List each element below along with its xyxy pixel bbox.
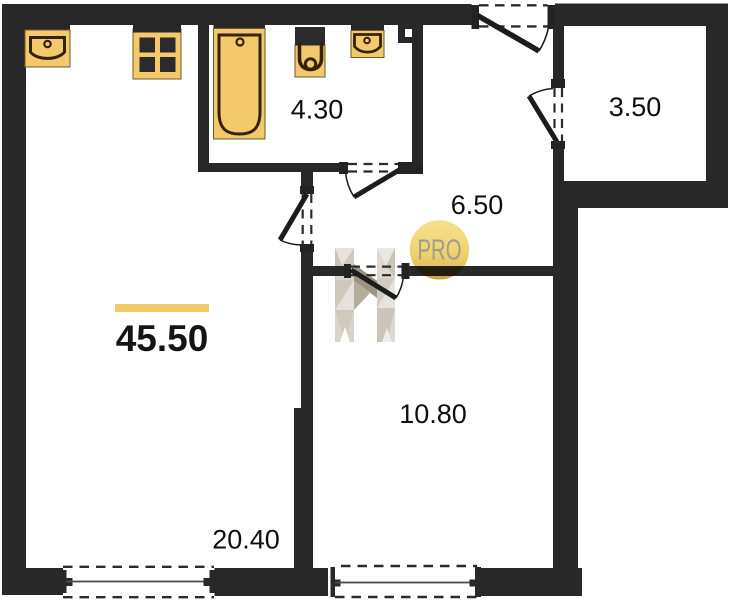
svg-text:10.80: 10.80: [399, 399, 467, 429]
svg-text:3.50: 3.50: [609, 92, 662, 122]
svg-text:PRO: PRO: [418, 235, 462, 267]
svg-text:20.40: 20.40: [212, 525, 280, 555]
svg-text:45.50: 45.50: [116, 318, 209, 359]
svg-text:6.50: 6.50: [451, 190, 504, 220]
svg-text:4.30: 4.30: [291, 95, 344, 125]
